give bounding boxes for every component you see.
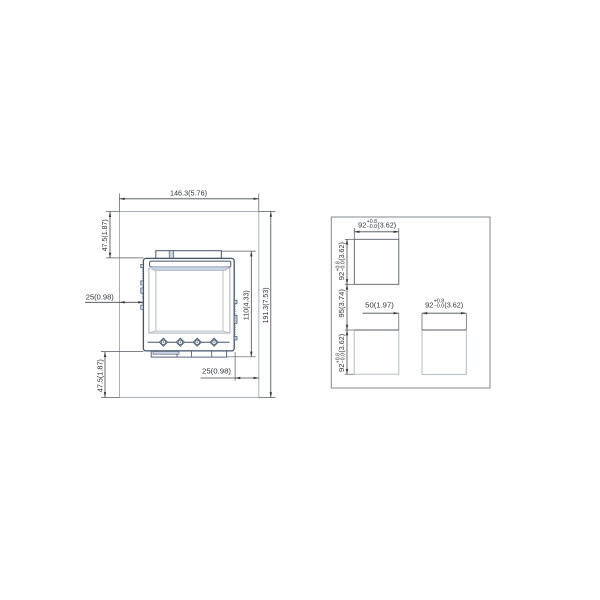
- svg-text:−0.0: −0.0: [434, 304, 444, 310]
- svg-text:47.5(1.87): 47.5(1.87): [100, 219, 109, 251]
- svg-text:−0.0: −0.0: [340, 261, 346, 271]
- svg-text:(3.62): (3.62): [377, 221, 396, 230]
- svg-text:92: 92: [337, 272, 346, 280]
- svg-text:92: 92: [358, 221, 366, 230]
- svg-text:95(3.74): 95(3.74): [337, 289, 346, 318]
- svg-text:(3.62): (3.62): [337, 242, 346, 261]
- svg-text:50(1.97): 50(1.97): [365, 301, 394, 310]
- svg-text:−0.0: −0.0: [367, 224, 377, 230]
- svg-text:110(4.33): 110(4.33): [241, 290, 250, 320]
- svg-text:47.5(1.87): 47.5(1.87): [95, 359, 104, 392]
- svg-text:191.3(7.53): 191.3(7.53): [261, 287, 270, 323]
- svg-text:(3.62): (3.62): [444, 301, 463, 310]
- svg-text:92: 92: [425, 301, 433, 310]
- svg-text:(3.62): (3.62): [337, 334, 346, 353]
- svg-text:92: 92: [337, 364, 346, 372]
- svg-text:25(0.98): 25(0.98): [202, 367, 231, 376]
- svg-text:25(0.98): 25(0.98): [86, 292, 114, 301]
- svg-text:−0.0: −0.0: [340, 353, 346, 363]
- svg-text:146.3(5.76): 146.3(5.76): [170, 189, 207, 198]
